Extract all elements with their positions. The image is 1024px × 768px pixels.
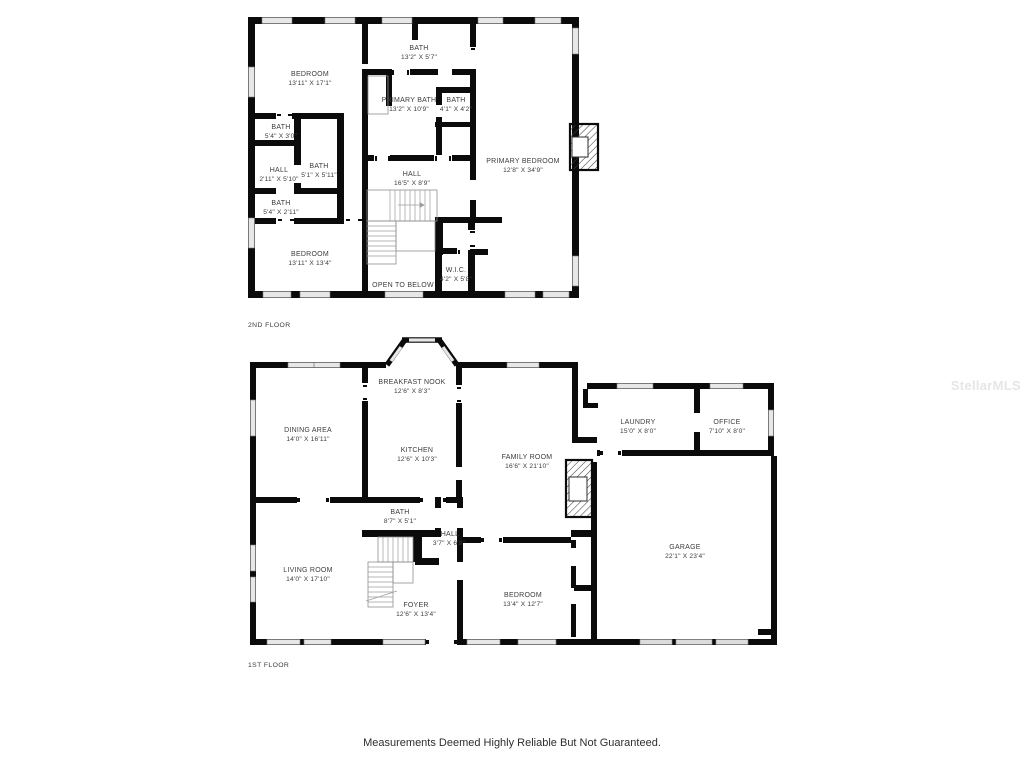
floor1-bay-window <box>387 340 457 365</box>
room-label-breakfast-nook-dims: 12'6" X 8'3" <box>394 388 430 395</box>
room-label-bath-top-name: BATH <box>409 45 428 52</box>
room-label-bedroom-top-dims: 13'11" X 17'1" <box>288 80 332 87</box>
room-label-bedroom-name: BEDROOM <box>504 592 542 599</box>
room-label-living-room-dims: 14'0" X 17'10" <box>286 576 330 583</box>
room-label-bath-left-upper-name: BATH <box>271 124 290 131</box>
room-label-bath-small-name: BATH <box>446 97 465 104</box>
room-label-bath-center-name: BATH <box>309 163 328 170</box>
room-label-bath-name: BATH <box>390 509 409 516</box>
floor2-fireplace <box>570 124 598 170</box>
room-label-bedroom-top-name: BEDROOM <box>291 71 329 78</box>
room-label-family-room-name: FAMILY ROOM <box>502 454 553 461</box>
room-label-hall-name: HALL <box>441 531 460 538</box>
room-label-primary-bedroom-dims: 12'8" X 34'9" <box>503 167 543 174</box>
room-label-living-room-name: LIVING ROOM <box>283 567 332 574</box>
floorplan-page: BEDROOM 13'11" X 17'1" BATH 13'2" X 5'7"… <box>0 0 1024 768</box>
floor1-labels: BREAKFAST NOOK 12'6" X 8'3" DINING AREA … <box>248 379 745 669</box>
floor1-staircase <box>366 537 413 607</box>
floor2-staircase <box>367 76 437 264</box>
room-label-wic-name: W.I.C. <box>446 267 467 274</box>
room-label-bedroom-bottom-name: BEDROOM <box>291 251 329 258</box>
room-label-breakfast-nook-name: BREAKFAST NOOK <box>378 379 445 386</box>
room-label-wic-dims: 4'2" X 5'8" <box>440 276 473 283</box>
room-label-laundry-name: LAUNDRY <box>620 419 655 426</box>
open-to-below-label: OPEN TO BELOW <box>372 282 434 289</box>
front-door-opening <box>426 639 457 646</box>
room-label-hall-dims: 3'7" X 6'9" <box>433 540 466 547</box>
room-label-office-name: OFFICE <box>713 419 740 426</box>
room-label-bath-top-dims: 13'2" X 5'7" <box>401 54 437 61</box>
room-label-hall-left-name: HALL <box>270 167 289 174</box>
floorplan-canvas: BEDROOM 13'11" X 17'1" BATH 13'2" X 5'7"… <box>0 0 1024 768</box>
room-label-dining-area-name: DINING AREA <box>284 427 332 434</box>
room-label-bath-left-upper-dims: 5'4" X 3'0" <box>265 133 298 140</box>
room-label-bath-left-lower-dims: 5'4" X 2'11" <box>263 209 299 216</box>
room-label-foyer-name: FOYER <box>403 602 428 609</box>
garage-doors <box>640 640 748 645</box>
room-label-primary-bath-dims: 13'2" X 10'9" <box>389 106 429 113</box>
room-label-dining-area-dims: 14'0" X 16'11" <box>286 436 330 443</box>
floor2-plan: BEDROOM 13'11" X 17'1" BATH 13'2" X 5'7"… <box>248 17 598 329</box>
room-label-primary-bedroom-name: PRIMARY BEDROOM <box>486 158 560 165</box>
room-label-family-room-dims: 16'6" X 21'10" <box>505 463 549 470</box>
room-label-hall-main-dims: 16'5" X 8'9" <box>394 180 430 187</box>
room-label-garage-name: GARAGE <box>669 544 701 551</box>
room-label-kitchen-name: KITCHEN <box>401 447 433 454</box>
room-label-office-dims: 7'10" X 8'0" <box>709 428 745 435</box>
room-label-bath-dims: 8'7" X 5'1" <box>384 518 417 525</box>
room-label-bath-small-dims: 4'1" X 4'2" <box>440 106 473 113</box>
floor2-title: 2ND FLOOR <box>248 322 291 329</box>
room-label-primary-bath-name: PRIMARY BATH <box>382 97 437 104</box>
stellar-mls-watermark: StellarMLS <box>951 378 1021 393</box>
room-label-laundry-dims: 15'0" X 8'0" <box>620 428 656 435</box>
room-label-garage-dims: 22'1" X 23'4" <box>665 553 705 560</box>
room-label-foyer-dims: 12'6" X 13'4" <box>396 611 436 618</box>
room-label-bath-left-lower-name: BATH <box>271 200 290 207</box>
floor1-plan: BREAKFAST NOOK 12'6" X 8'3" DINING AREA … <box>248 340 777 669</box>
room-label-hall-main-name: HALL <box>403 171 422 178</box>
room-label-kitchen-dims: 12'6" X 10'3" <box>397 456 437 463</box>
room-label-bedroom-bottom-dims: 13'11" X 13'4" <box>288 260 332 267</box>
room-label-hall-left-dims: 2'11" X 5'10" <box>259 176 299 183</box>
room-label-bedroom-dims: 13'4" X 12'7" <box>503 601 543 608</box>
floor1-title: 1ST FLOOR <box>248 662 289 669</box>
floor1-fireplace <box>566 460 592 517</box>
disclaimer-text: Measurements Deemed Highly Reliable But … <box>363 737 661 749</box>
room-label-bath-center-dims: 5'1" X 5'11" <box>301 172 337 179</box>
